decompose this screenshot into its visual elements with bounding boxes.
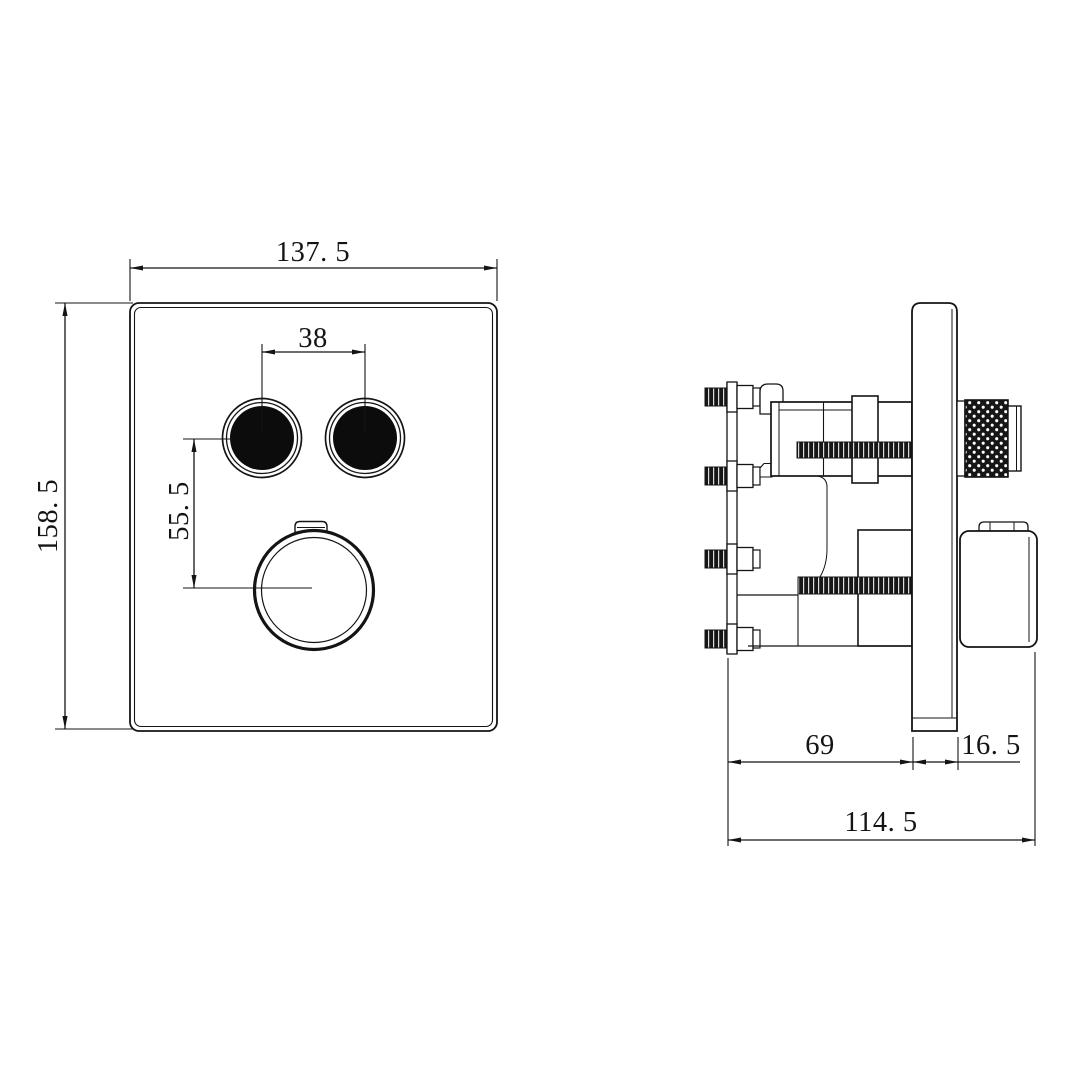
- dim-label-wall-depth: 69: [805, 730, 835, 761]
- dim-label-front-height: 158. 5: [33, 479, 64, 553]
- mounting-screw-1: [705, 382, 760, 412]
- dim-label-button-to-dial: 55. 5: [164, 481, 195, 541]
- threaded-rod-top: [797, 442, 913, 458]
- front-view: 137. 5 158. 5 38 55. 5: [33, 237, 497, 731]
- technical-drawing-page: 137. 5 158. 5 38 55. 5: [0, 0, 1080, 1080]
- hex-fitting: [852, 396, 878, 483]
- valve-body: [737, 384, 913, 646]
- dial-knob-side: [960, 522, 1037, 647]
- mounting-screw-4: [705, 624, 760, 654]
- dim-label-trim-depth: 16. 5: [961, 730, 1021, 761]
- dim-front-height: 158. 5: [33, 303, 133, 729]
- side-view: 69 16. 5 114. 5: [705, 303, 1037, 846]
- threaded-rod-bottom: [798, 577, 913, 594]
- dim-front-width: 137. 5: [130, 237, 497, 301]
- dim-label-total-depth: 114. 5: [844, 807, 917, 838]
- dim-label-front-width: 137. 5: [276, 237, 350, 268]
- faceplate-side: [912, 303, 957, 731]
- technical-drawing-canvas: 137. 5 158. 5 38 55. 5: [0, 0, 1080, 1080]
- mounting-bracket: [727, 383, 737, 653]
- mounting-screw-3: [705, 544, 760, 574]
- dim-label-button-spacing: 38: [298, 323, 328, 354]
- mounting-screw-2: [705, 461, 760, 491]
- knurled-button-side: [957, 400, 1021, 477]
